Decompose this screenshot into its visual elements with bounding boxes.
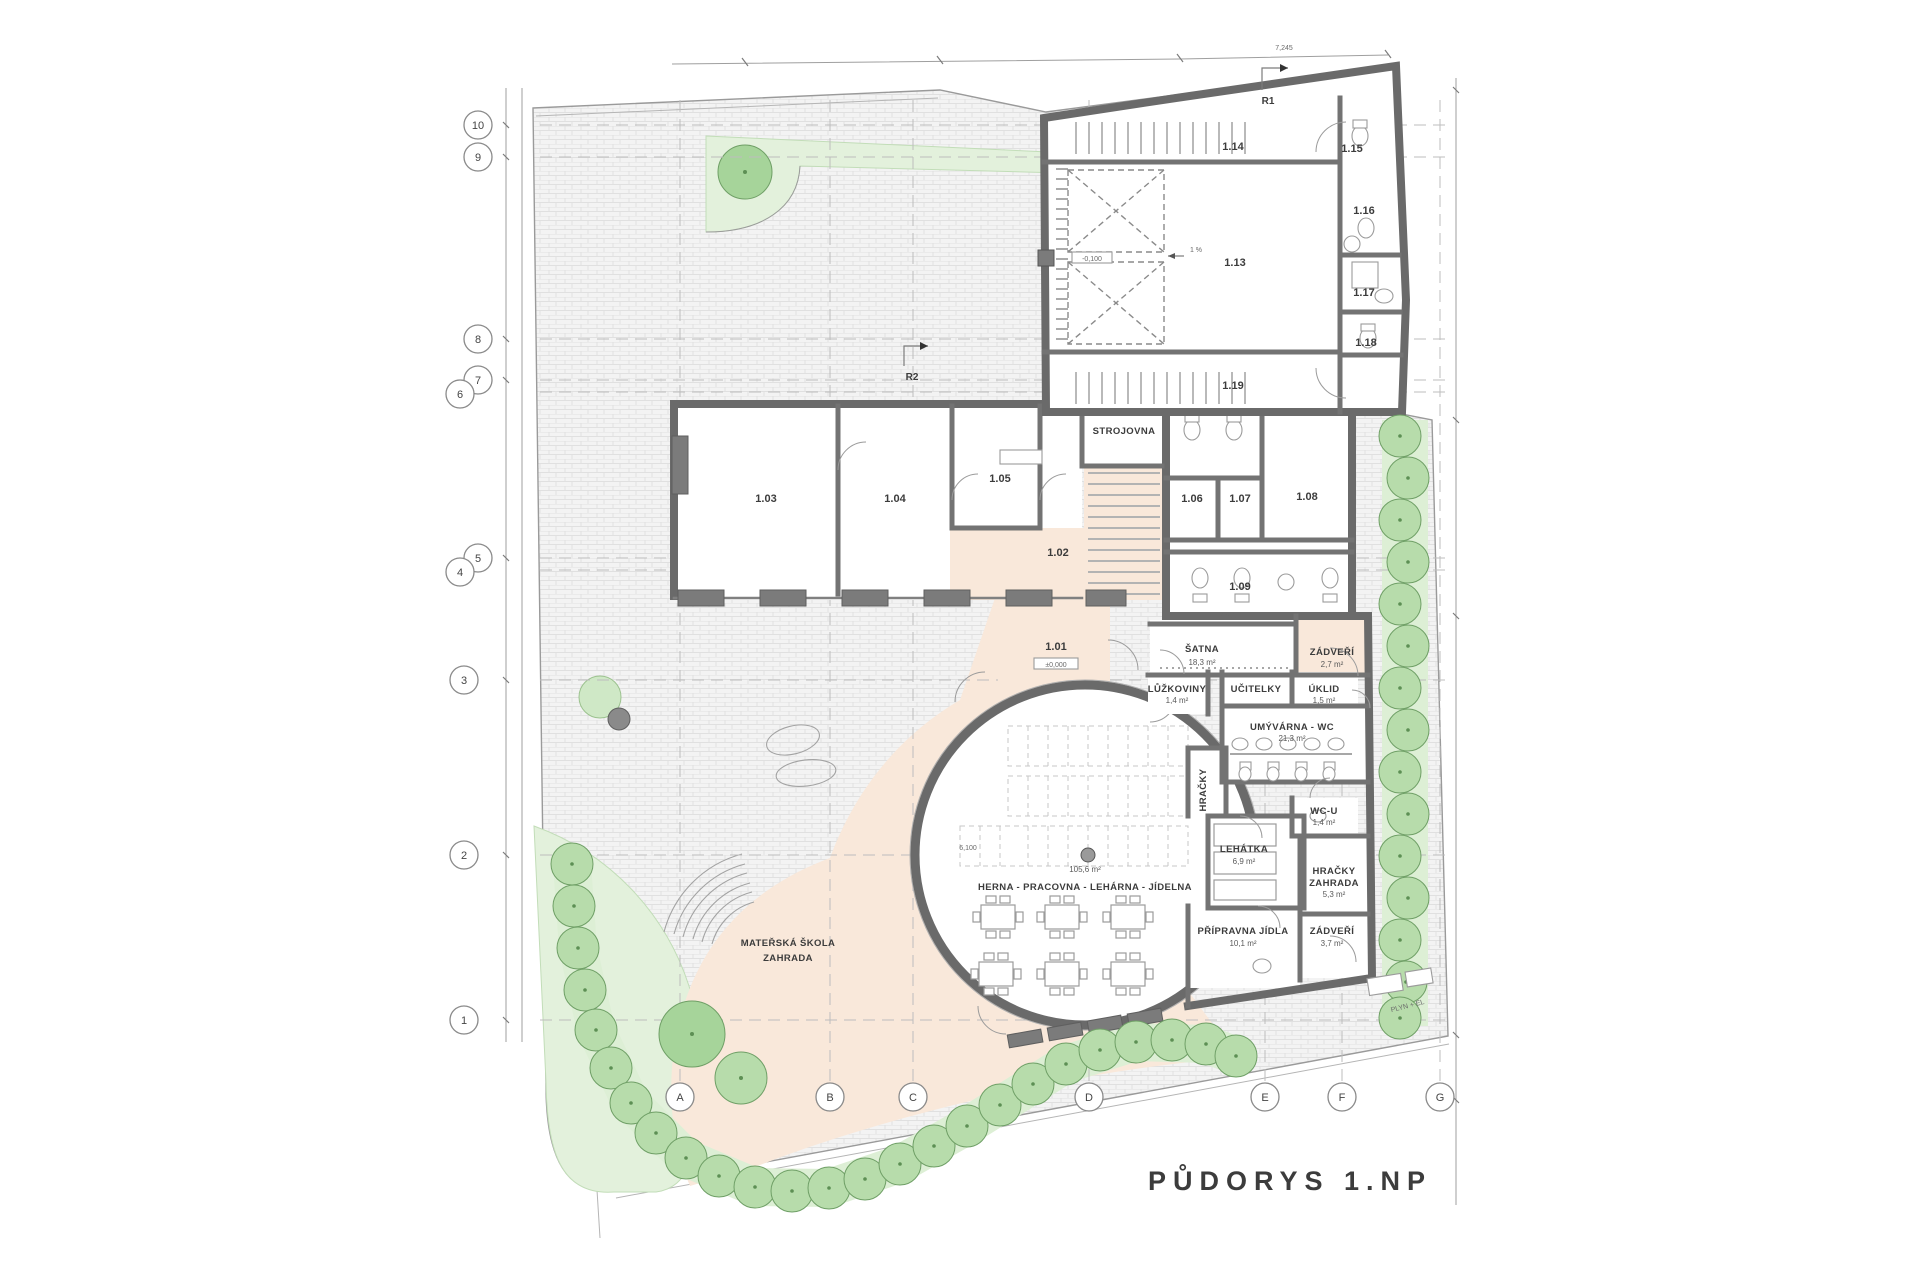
grid-col-label: F [1339,1092,1346,1104]
room-area: 21,3 m² [1278,734,1305,743]
room-area: 2,7 m² [1321,660,1344,669]
room-name: HRAČKY [1312,865,1355,877]
room-name: HRAČKY [1197,768,1209,811]
section-marker-r2: R2 [906,372,919,383]
room-number: 1.03 [755,493,776,505]
tree-icon [1387,709,1429,751]
tree-icon [553,885,595,927]
room-number: 1.06 [1181,493,1202,505]
floor-plan-drawing: -0,100 1 % [0,0,1920,1280]
room-area: 10,1 m² [1229,939,1256,948]
room-name: UČITELKY [1231,683,1282,695]
room-number: 1.02 [1047,547,1068,559]
tree-icon [734,1166,776,1208]
dim-top-label: 7,245 [1275,45,1293,52]
room-area: 5,3 m² [1323,890,1346,899]
room-number: 1.01 [1045,641,1066,653]
level-101: ±0,000 [1045,662,1066,669]
room-area: 1,5 m² [1313,696,1336,705]
tree-icon [1379,415,1421,457]
grid-col-label: C [909,1092,917,1104]
grid-row-label: 9 [475,152,481,164]
tree-icon [1379,835,1421,877]
grid-col-label: G [1436,1092,1445,1104]
room-name: ÚKLID [1308,683,1339,695]
room-name: LŮŽKOVINY [1148,683,1207,695]
tree-icon [575,1009,617,1051]
tree-icon [1387,625,1429,667]
tree-icon [1215,1035,1257,1077]
tree-icon [564,969,606,1011]
room-name: ZAHRADA [1309,878,1359,889]
hall-area: 105,6 m² [1069,865,1101,874]
room-number: 1.13 [1224,257,1245,269]
tree-icon [1379,499,1421,541]
room-area: 1,4 m² [1166,696,1189,705]
grid-row-label: 7 [475,375,481,387]
grid-col-label: A [676,1092,684,1104]
tree-icon [698,1155,740,1197]
grid-row-label: 1 [461,1015,467,1027]
room-number: 1.05 [989,473,1010,485]
room-number: 1.14 [1222,141,1244,153]
tree-icon [1387,541,1429,583]
drawing-title: PŮDORYS 1.NP [1148,1163,1432,1196]
room-name: WC-U [1310,806,1337,817]
grid-col-label: D [1085,1092,1093,1104]
tree-icon [1379,751,1421,793]
tree-icon [743,170,747,174]
tree-icon [551,843,593,885]
column [1038,250,1054,266]
room-number: 1.04 [884,493,906,505]
stair-hall [1084,466,1164,600]
tree-icon [1379,667,1421,709]
room-number: 1.17 [1353,287,1374,299]
room-area: 18,3 m² [1188,658,1215,667]
room-number: 1.08 [1296,491,1317,503]
tree-icon [808,1167,850,1209]
room-name: LEHÁTKA [1220,844,1268,855]
room-name: ZÁDVEŘÍ [1310,646,1355,658]
room-area: 3,7 m² [1321,939,1344,948]
grid-row-label: 5 [475,553,481,565]
garden-label-line2: ZAHRADA [763,953,813,964]
building-upper: -0,100 1 % [1038,66,1406,412]
room-area: 1,4 m² [1313,818,1336,827]
tree-icon [739,1076,743,1080]
grid-row-label: 6 [457,389,463,401]
tree-icon [557,927,599,969]
grid-row-label: 10 [472,120,484,132]
room-number: 1.07 [1229,493,1250,505]
dim-hall-label: 6,100 [959,845,977,852]
room-number: 1.15 [1341,143,1362,155]
tree-icon [771,1170,813,1212]
tree-icon [1387,877,1429,919]
center-column [1081,848,1095,862]
grid-row-label: 2 [461,850,467,862]
section-marker-r1: R1 [1262,96,1275,107]
room-number: 1.16 [1353,205,1374,217]
grid-col-label: B [826,1092,833,1104]
grid-row-label: 4 [457,567,463,579]
grid-row-label: 8 [475,334,481,346]
slope-label: 1 % [1190,247,1202,254]
floor-plan-sheet: -0,100 1 % [0,0,1920,1280]
tree-icon [1079,1029,1121,1071]
room-name: ZÁDVEŘÍ [1310,925,1355,937]
grid-row-label: 3 [461,675,467,687]
room-number: 1.19 [1222,380,1243,392]
room-name: PŘÍPRAVNA JÍDLA [1198,925,1289,937]
room-name: STROJOVNA [1093,426,1156,437]
room-name: ŠATNA [1185,643,1219,655]
room-number: 1.18 [1355,337,1376,349]
room-number: 1.09 [1229,581,1250,593]
tree-icon [690,1032,694,1036]
room-name: UMÝVÁRNA - WC [1250,721,1334,733]
site-boundary-stub [597,1190,600,1238]
room-satna [1150,620,1298,675]
room-area: 6,9 m² [1233,857,1256,866]
level-113: -0,100 [1082,256,1102,263]
grid-bubbles-rows: 10 9 8 7 6 5 4 3 2 1 [446,111,492,1034]
tree-icon [1379,919,1421,961]
tree-icon [1387,793,1429,835]
dim-satna-label: 7,550 [1219,613,1237,620]
grid-col-label: E [1261,1092,1268,1104]
garden-label-line1: MATEŘSKÁ ŠKOLA [741,937,836,949]
tree-icon [1379,583,1421,625]
tree-icon [1387,457,1429,499]
hall-name: HERNA - PRACOVNA - LEHÁRNA - JÍDELNA [978,882,1192,893]
manhole-icon [608,708,630,730]
